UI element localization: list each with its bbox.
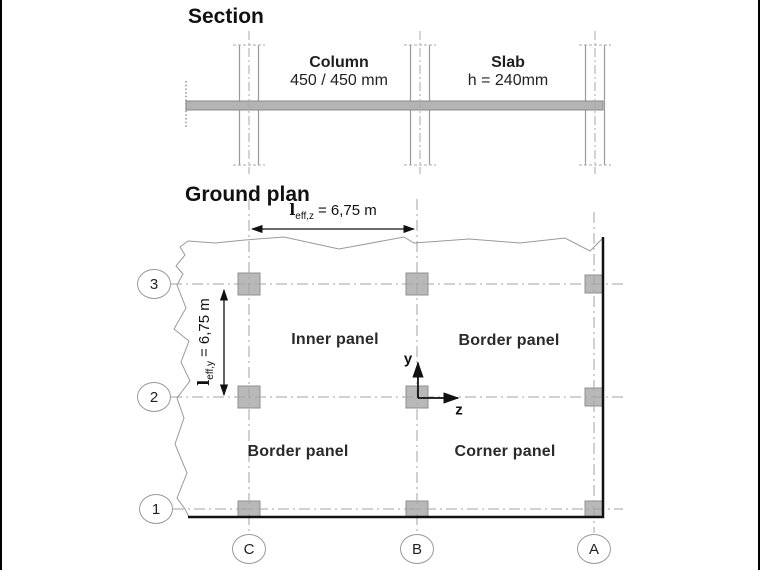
section-column-dimension: 450 / 450 mm: [290, 72, 388, 90]
border-panel-bottom-label: Border panel: [247, 443, 348, 461]
grid-bubble-row-3: 3: [137, 269, 171, 299]
dim-y-symbol: l: [194, 380, 213, 386]
axis-y-label: y: [404, 351, 412, 368]
plan-columns: [238, 273, 603, 517]
inner-panel-label: Inner panel: [291, 331, 379, 349]
grid-bubble-col-A: A: [577, 534, 611, 564]
dimension-label-leff-z: leff,z= 6,75 m: [289, 200, 377, 222]
plan-break-line-top: [188, 237, 603, 251]
grid-bubble-col-B: B: [400, 534, 434, 564]
border-panel-top-label: Border panel: [458, 332, 559, 350]
structural-diagram-page: Section Column 450 / 450 mm Slab h = 240…: [0, 0, 760, 570]
dim-z-value: = 6,75 m: [318, 202, 377, 219]
corner-panel-label: Corner panel: [454, 443, 555, 461]
grid-bubble-row-1: 1: [139, 494, 173, 524]
axis-z-label: z: [455, 402, 463, 419]
section-slab-dimension: h = 240mm: [468, 72, 548, 90]
dim-y-value: = 6,75 m: [196, 298, 213, 357]
dim-y-subscript: eff,y: [205, 361, 216, 380]
plan-break-line-left: [174, 241, 190, 517]
section-title: Section: [188, 5, 264, 29]
section-view: [186, 31, 611, 174]
ground-plan-view: [171, 199, 623, 533]
section-slab-label: Slab: [491, 54, 525, 72]
dimension-label-leff-y: leff,y= 6,75 m: [194, 298, 216, 386]
grid-bubble-col-C: C: [232, 534, 266, 564]
plan-grid-lines: [171, 199, 623, 533]
section-column-label: Column: [309, 54, 369, 72]
dim-z-subscript: eff,z: [295, 211, 314, 222]
grid-bubble-row-2: 2: [137, 382, 171, 412]
